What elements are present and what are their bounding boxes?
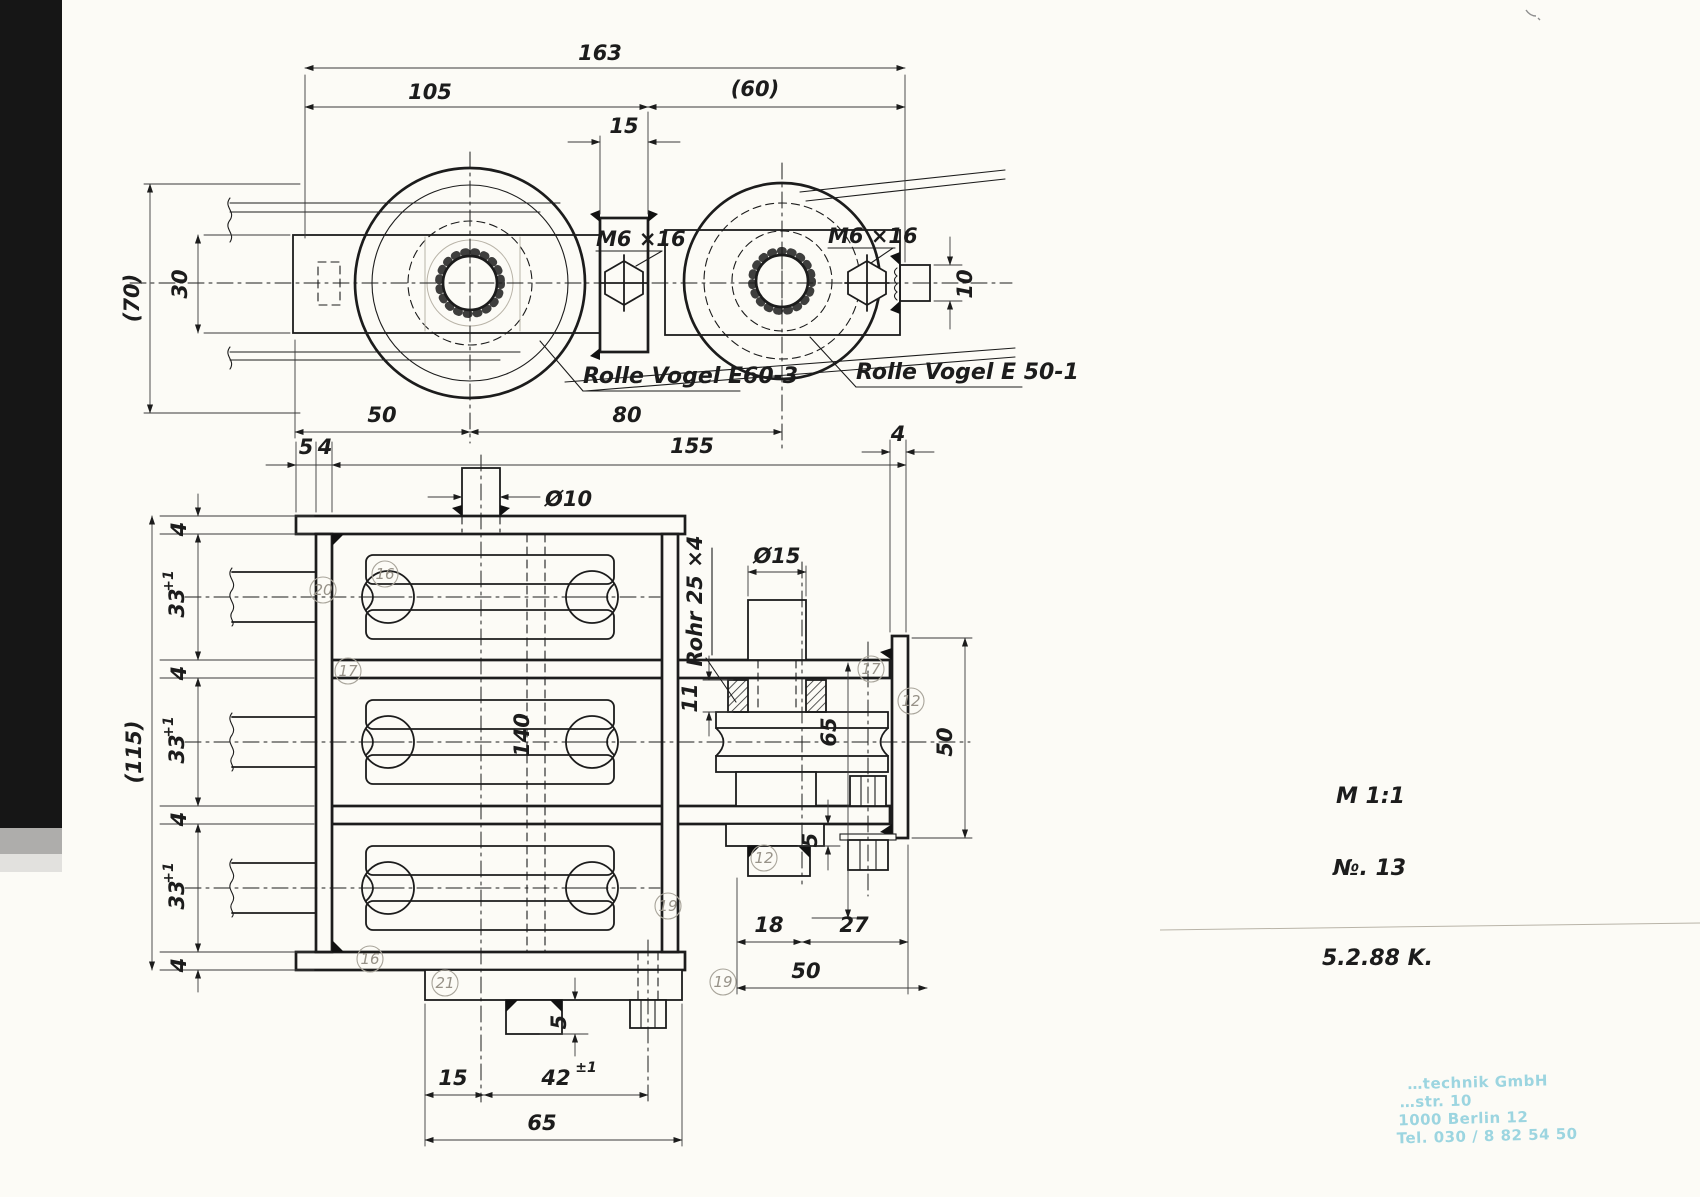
paper-crease: [1160, 923, 1700, 930]
svg-text:16: 16: [375, 565, 394, 583]
roller-right-text: Rolle Vogel E 50-1: [856, 360, 1079, 385]
bubble-12-plate: 12: [898, 688, 924, 714]
dim-15-bottom: 15: [438, 1066, 467, 1090]
dim-33a: 33: [165, 588, 189, 617]
svg-text:19: 19: [713, 973, 732, 991]
svg-text:16: 16: [360, 950, 379, 968]
svg-text:20: 20: [313, 581, 332, 599]
dim-33b: 33: [165, 734, 189, 763]
bolt-right-text: M6 ×16: [828, 224, 918, 248]
dim-70: (70): [120, 274, 144, 322]
dim-4b: 4: [167, 666, 191, 682]
svg-text:17: 17: [861, 660, 881, 678]
axle-bar-left: [293, 235, 600, 333]
top-view-centerlines: [130, 152, 1012, 450]
dim-42-tol: ±1: [575, 1060, 596, 1076]
bubble-17-left: 17: [335, 658, 361, 684]
bubble-19-low: 19: [710, 969, 736, 995]
dim-4-plate-r: 4: [890, 422, 906, 446]
svg-text:12: 12: [901, 692, 920, 710]
dim-4a: 4: [167, 522, 191, 538]
stamp-line-1: …technik GmbH: [1407, 1071, 1548, 1093]
bolt-label-left: M6 ×16: [596, 227, 686, 266]
svg-text:12: 12: [754, 849, 773, 867]
stamp-line-4: Tel. 030 / 8 82 54 50: [1396, 1125, 1577, 1148]
bolt-left-text: M6 ×16: [596, 227, 686, 251]
dim-50-top: 50: [367, 403, 396, 427]
dim-5-cup: 5: [547, 1015, 571, 1030]
title-notes: M 1:1 №. 13 5.2.88 K.: [1322, 784, 1433, 971]
arm-bracket: [726, 824, 824, 876]
dim-50-bottom: 50: [791, 959, 820, 983]
dim-50-plate: 50: [933, 727, 957, 756]
top-view-dimensions: [144, 68, 962, 438]
dim-65-bottom: 65: [527, 1111, 556, 1135]
dim-dia10: Ø10: [544, 487, 592, 511]
dim-27: 27: [839, 913, 869, 937]
stamp-line-2: …str. 10: [1400, 1091, 1473, 1111]
top-view: 163 105 (60) 15 (70) 30 10 50 80 M6 ×16 …: [120, 41, 1079, 450]
scale-note: M 1:1: [1336, 784, 1405, 809]
dim-4c: 4: [167, 812, 191, 828]
scan-edge-strip: [0, 0, 62, 872]
scan-mark: [1526, 10, 1540, 20]
sheet-number: №. 13: [1332, 856, 1406, 881]
dim-33c: 33: [165, 880, 189, 909]
dim-5-step: 5: [798, 833, 822, 848]
roller-label-right: Rolle Vogel E 50-1: [810, 337, 1079, 387]
dim-163: 163: [578, 41, 622, 65]
dim-11: 11: [678, 683, 702, 712]
drawing-canvas: 163 105 (60) 15 (70) 30 10 50 80 M6 ×16 …: [0, 0, 1700, 1197]
date-initials: 5.2.88 K.: [1322, 946, 1433, 971]
tube-label-text: Rohr 25 ×4: [683, 536, 707, 667]
dim-105: 105: [408, 80, 452, 104]
bolt-label-right: M6 ×16: [828, 224, 918, 263]
dim-5-flange: 5: [299, 435, 314, 459]
front-view: 5 4 155 4 Ø10 (115) 4 33 +1 4 33 +1 4 33…: [122, 422, 972, 1146]
dim-dia15: Ø15: [752, 544, 800, 568]
svg-text:19: 19: [658, 897, 677, 915]
dim-65-arm: 65: [817, 717, 841, 746]
dim-18: 18: [754, 913, 783, 937]
dim-140: 140: [510, 713, 534, 757]
dim-115: (115): [122, 720, 146, 783]
dim-10: 10: [953, 269, 977, 298]
svg-text:21: 21: [435, 974, 454, 992]
roller-left-text: Rolle Vogel E60-3: [583, 364, 798, 389]
dim-155: 155: [670, 434, 714, 458]
front-view-dimensions: [152, 440, 972, 1146]
dim-33c-tol: +1: [161, 862, 177, 883]
dim-15: 15: [609, 114, 638, 138]
dim-80: 80: [612, 403, 641, 427]
dim-33a-tol: +1: [161, 570, 177, 591]
dim-4d: 4: [167, 958, 191, 974]
dim-42: 42: [540, 1066, 570, 1090]
roller-label-left: Rolle Vogel E60-3: [540, 341, 798, 391]
company-stamp: …technik GmbH …str. 10 1000 Berlin 12 Te…: [1395, 1071, 1578, 1148]
scanned-drawing-page: 163 105 (60) 15 (70) 30 10 50 80 M6 ×16 …: [0, 0, 1700, 1197]
dim-4-wall: 4: [317, 435, 333, 459]
dim-30: 30: [168, 269, 192, 298]
dim-33b-tol: +1: [161, 716, 177, 737]
svg-text:17: 17: [338, 662, 358, 680]
dim-60: (60): [731, 77, 779, 101]
